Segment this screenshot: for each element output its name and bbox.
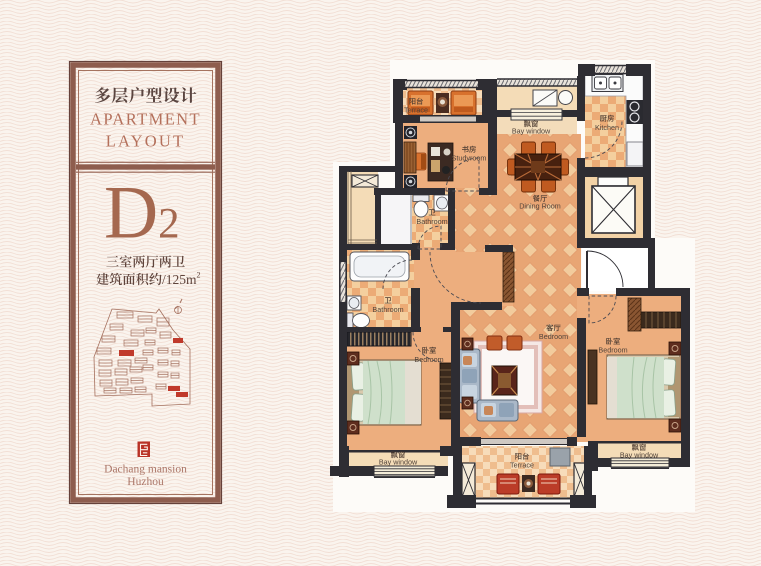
svg-text:2: 2 [197, 271, 201, 280]
svg-text:Dachang mansion: Dachang mansion [104, 464, 187, 476]
svg-text:Bay window: Bay window [620, 451, 659, 460]
svg-text:Kitchen: Kitchen [595, 123, 619, 132]
svg-text:Bay window: Bay window [512, 127, 551, 136]
svg-text:Bathroom: Bathroom [416, 217, 447, 226]
svg-text:LAYOUT: LAYOUT [106, 132, 186, 151]
svg-text:Bedroom: Bedroom [414, 355, 443, 364]
svg-text:Dining Room: Dining Room [519, 202, 561, 211]
svg-text:Bathroom: Bathroom [372, 305, 403, 314]
svg-text:Bedroom: Bedroom [539, 332, 568, 341]
svg-text:Terrace: Terrace [510, 461, 534, 470]
svg-text:Bedroom: Bedroom [598, 346, 627, 355]
svg-text:APARTMENT: APARTMENT [90, 110, 201, 129]
svg-text:Terrace: Terrace [404, 106, 428, 115]
svg-text:Huzhou: Huzhou [127, 476, 164, 488]
svg-text:Bay window: Bay window [379, 458, 418, 467]
svg-text:/125m: /125m [162, 272, 197, 287]
svg-text:Studyroom: Studyroom [452, 154, 487, 163]
